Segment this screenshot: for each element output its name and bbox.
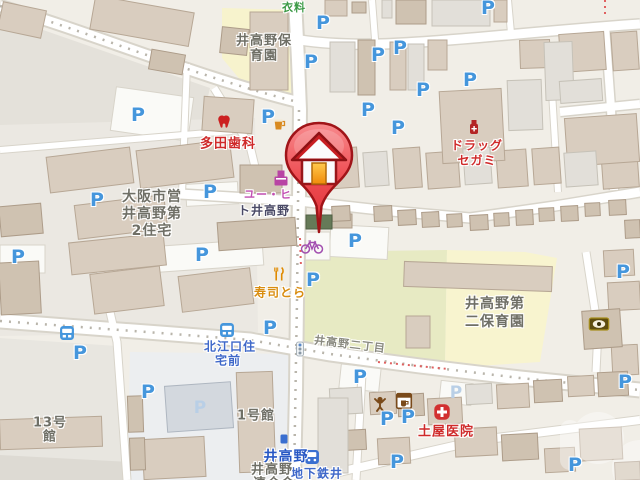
parking-icon: P [304,51,318,73]
parking-icon: P [481,0,495,19]
parking-icon: P [416,79,430,101]
parking-icon: P [263,317,277,339]
parking-icon: P [391,117,405,139]
bus-stop-icon [60,326,75,341]
label-nursery-south-line1: 井高野第 [465,293,525,313]
label-hall-line2: 連合会 [253,473,295,480]
parking-icon: P [11,246,25,268]
parking-icon: P [463,69,477,91]
map-canvas[interactable]: P P P P P P P P P P P P P P P P P P P P … [0,0,640,480]
parking-icon: P [401,406,415,428]
label-dental-clinic: 多田歯科 [200,133,256,152]
parking-lot-icon: P [450,383,462,403]
parking-icon: P [371,44,385,66]
parking-icon: P [141,381,155,403]
parking-icon: P [131,104,145,126]
label-building13-line2: 館 [43,426,57,445]
parking-icon: P [261,106,275,128]
hospital-cross-icon [434,404,451,421]
traffic-signal-icon [296,342,304,357]
parking-icon: P [306,269,320,291]
label-nursery-north-line2: 育園 [250,45,278,64]
parking-icon: P [380,408,394,430]
parking-icon: P [618,371,632,393]
label-sushi-restaurant: 寿司とら [254,284,306,301]
parking-icon: P [73,342,87,364]
label-housing-line3: 2住宅 [132,220,173,240]
parking-icon: P [616,261,630,283]
parking-lot-icon: P [194,398,206,418]
parking-icon: P [195,244,209,266]
parking-icon: P [353,366,367,388]
pharmacy-bottle-icon [467,119,481,136]
dentist-tooth-icon [216,114,232,130]
station-entrance-icon [280,434,288,444]
label-building1: 1号館 [237,405,275,424]
label-clinic: 土屋医院 [418,421,474,440]
parking-icon: P [90,189,104,211]
label-bus-stop-line2: 宅前 [215,352,241,369]
parking-icon: P [390,451,404,473]
house-marker-pin[interactable] [283,120,355,238]
parking-icon: P [203,181,217,203]
label-clothing-store: 衣料 [282,0,306,15]
label-subway: 地下鉄井 [291,465,343,480]
optician-eye-icon [589,316,610,333]
parking-icon: P [568,454,582,476]
restaurant-fork-knife-icon [272,267,287,282]
parking-icon: P [361,99,375,121]
label-drugstore-line2: セガミ [457,152,496,169]
parking-icon: P [316,12,330,34]
label-nursery-south-line2: 二保育園 [465,311,525,331]
bicycle-parking-icon [301,238,324,255]
bus-stop-icon [220,323,235,338]
parking-icon: P [393,37,407,59]
